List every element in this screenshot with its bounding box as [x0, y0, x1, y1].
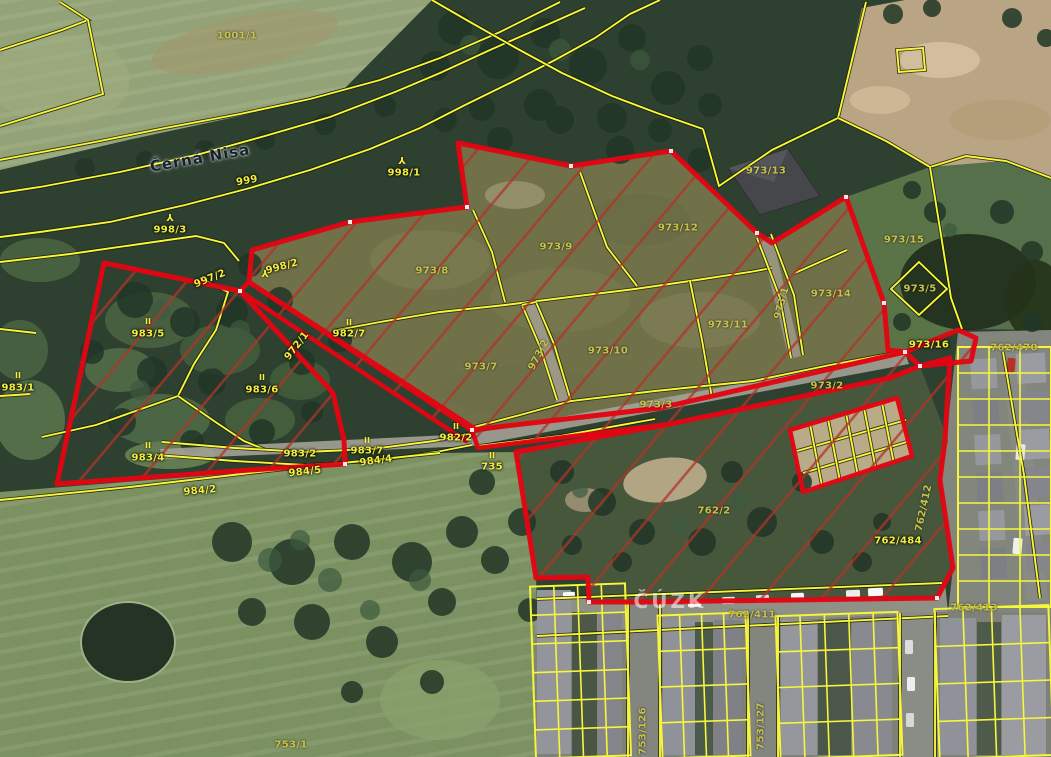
cadastral-map[interactable]: 1001/1Černá Nisa999998/1998/3997/2998/29… [0, 0, 1051, 757]
aerial-imagery [0, 0, 1051, 757]
